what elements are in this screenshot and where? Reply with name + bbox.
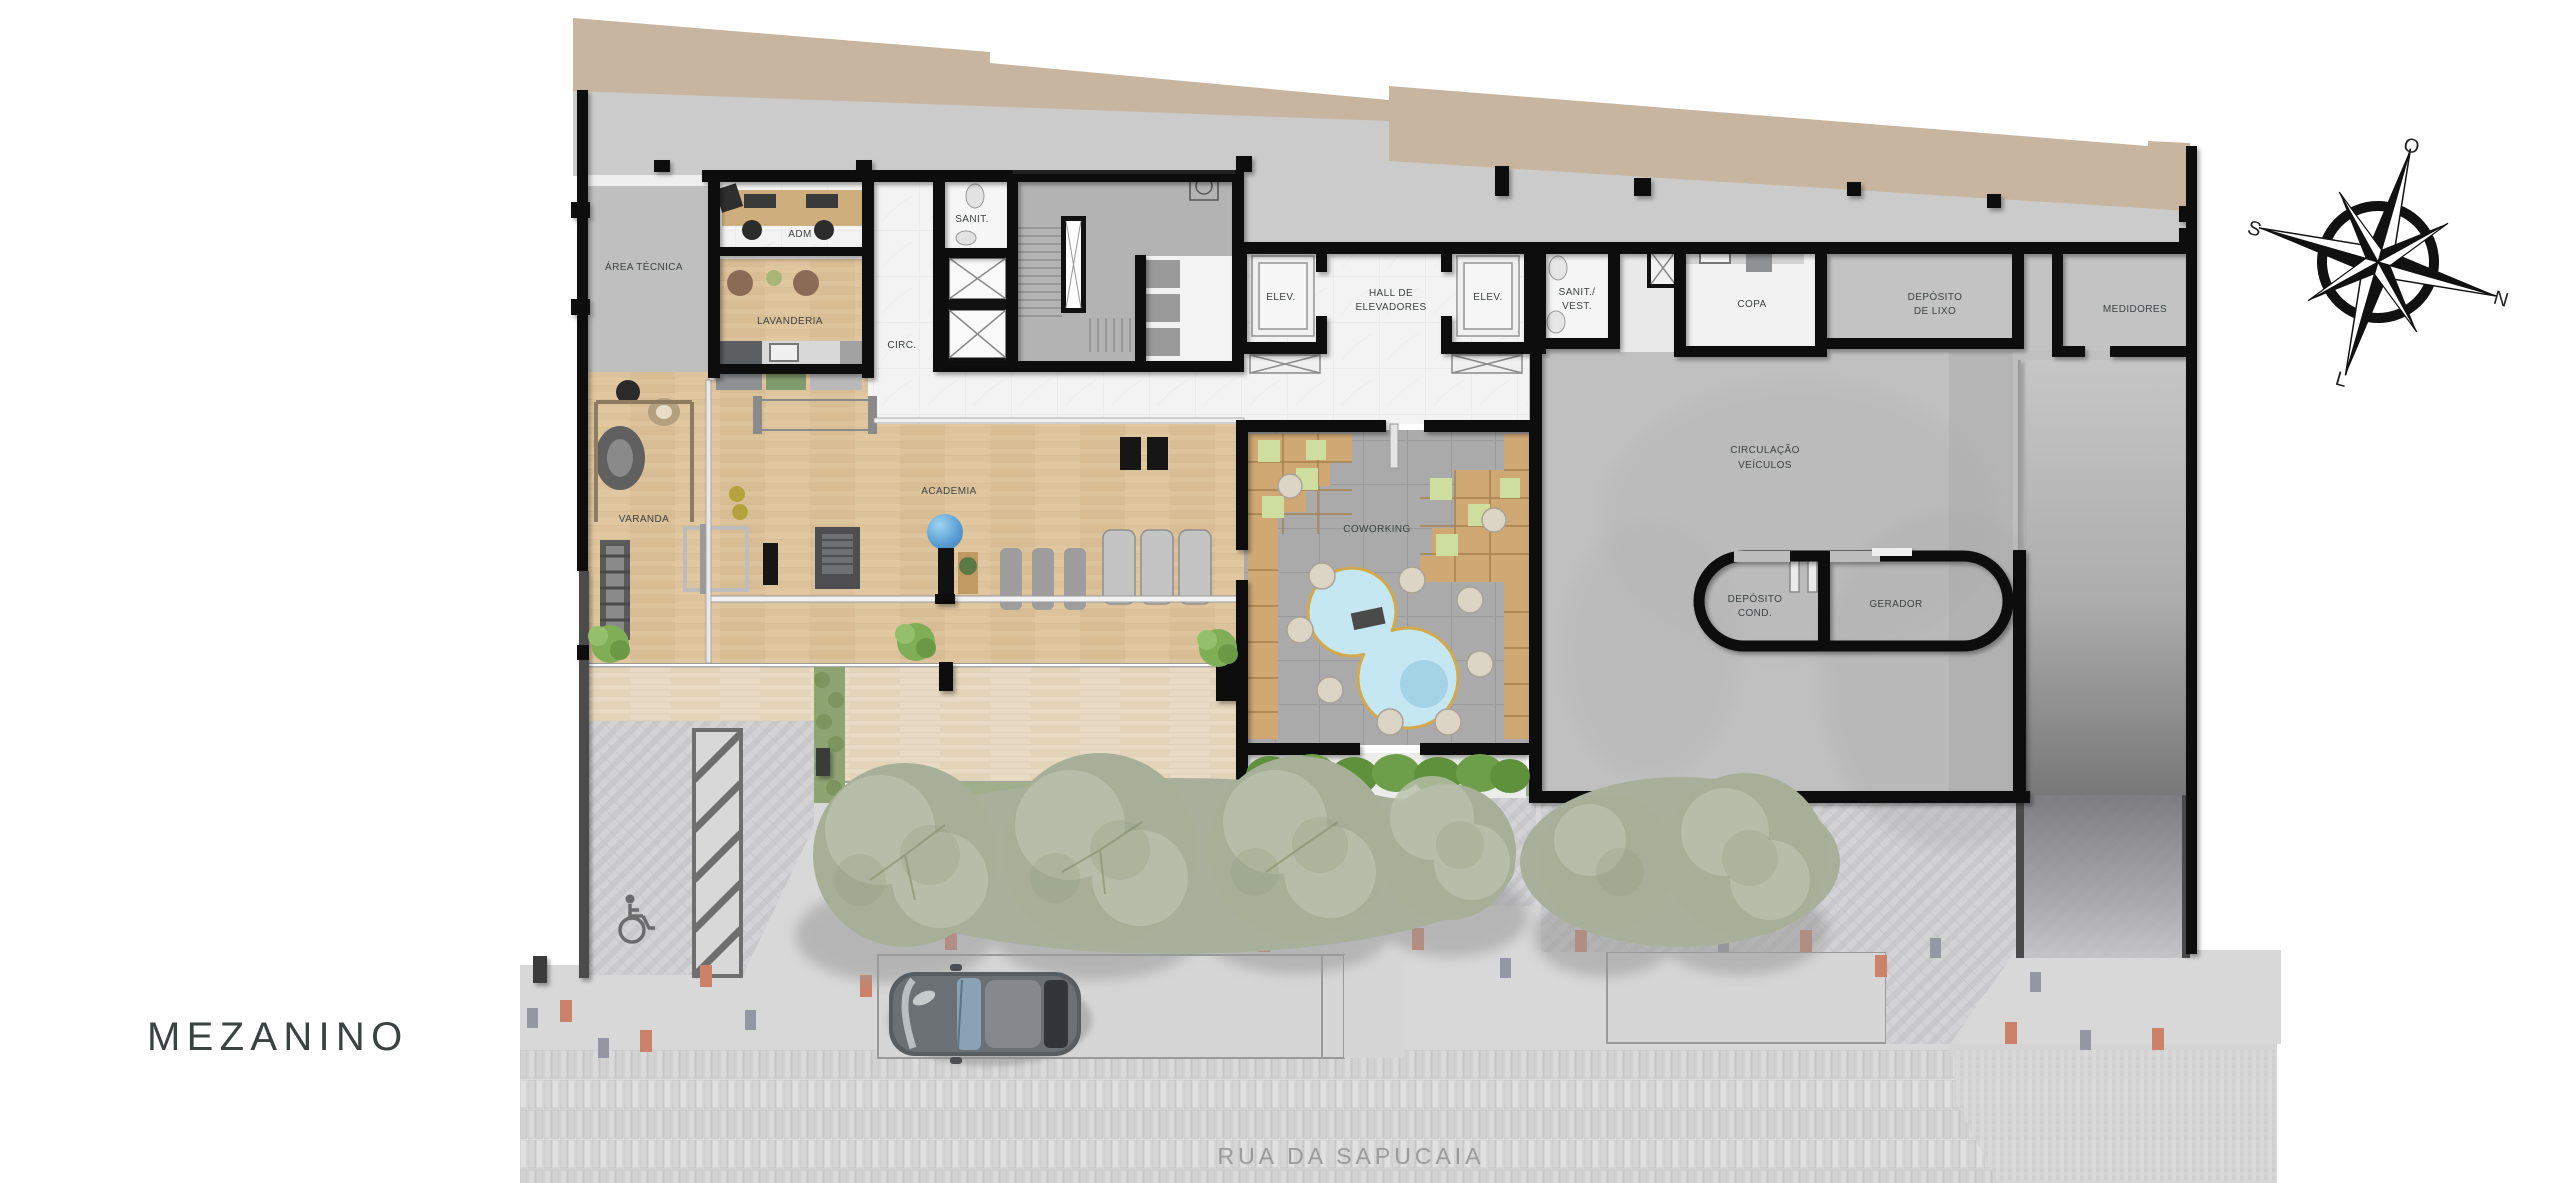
svg-text:SANIT.: SANIT. [955, 214, 989, 225]
svg-text:O: O [2401, 134, 2422, 159]
svg-text:MEDIDORES: MEDIDORES [2103, 304, 2167, 315]
svg-text:ELEV.: ELEV. [1473, 292, 1502, 303]
svg-text:ÁREA TÉCNICA: ÁREA TÉCNICA [605, 260, 683, 273]
svg-text:L: L [2333, 368, 2350, 392]
svg-text:ELEV.: ELEV. [1266, 292, 1295, 303]
svg-text:SANIT./: SANIT./ [1559, 287, 1596, 298]
svg-text:COND.: COND. [1738, 608, 1772, 619]
svg-text:VEÍCULOS: VEÍCULOS [1738, 458, 1792, 471]
svg-text:MEZANINO: MEZANINO [147, 1015, 409, 1059]
svg-text:CIRC.: CIRC. [887, 340, 916, 351]
svg-text:ELEVADORES: ELEVADORES [1355, 302, 1426, 313]
svg-text:ADM: ADM [788, 229, 811, 240]
svg-text:N: N [2491, 287, 2511, 312]
svg-text:LAVANDERIA: LAVANDERIA [757, 316, 823, 327]
svg-text:CIRCULAÇÃO: CIRCULAÇÃO [1730, 443, 1800, 456]
svg-text:GERADOR: GERADOR [1869, 599, 1922, 610]
svg-text:VEST.: VEST. [1562, 301, 1592, 312]
svg-text:ACADEMIA: ACADEMIA [921, 486, 976, 497]
svg-text:DEPÓSITO: DEPÓSITO [1728, 592, 1783, 605]
svg-text:DEPÓSITO: DEPÓSITO [1908, 290, 1963, 303]
svg-text:VARANDA: VARANDA [619, 514, 669, 525]
svg-text:COWORKING: COWORKING [1343, 524, 1411, 535]
svg-text:HALL DE: HALL DE [1369, 288, 1413, 299]
svg-text:COPA: COPA [1737, 299, 1766, 310]
svg-text:DE LIXO: DE LIXO [1914, 306, 1956, 317]
svg-text:S: S [2245, 217, 2264, 242]
svg-text:RUA DA SAPUCAIA: RUA DA SAPUCAIA [1217, 1143, 1484, 1169]
